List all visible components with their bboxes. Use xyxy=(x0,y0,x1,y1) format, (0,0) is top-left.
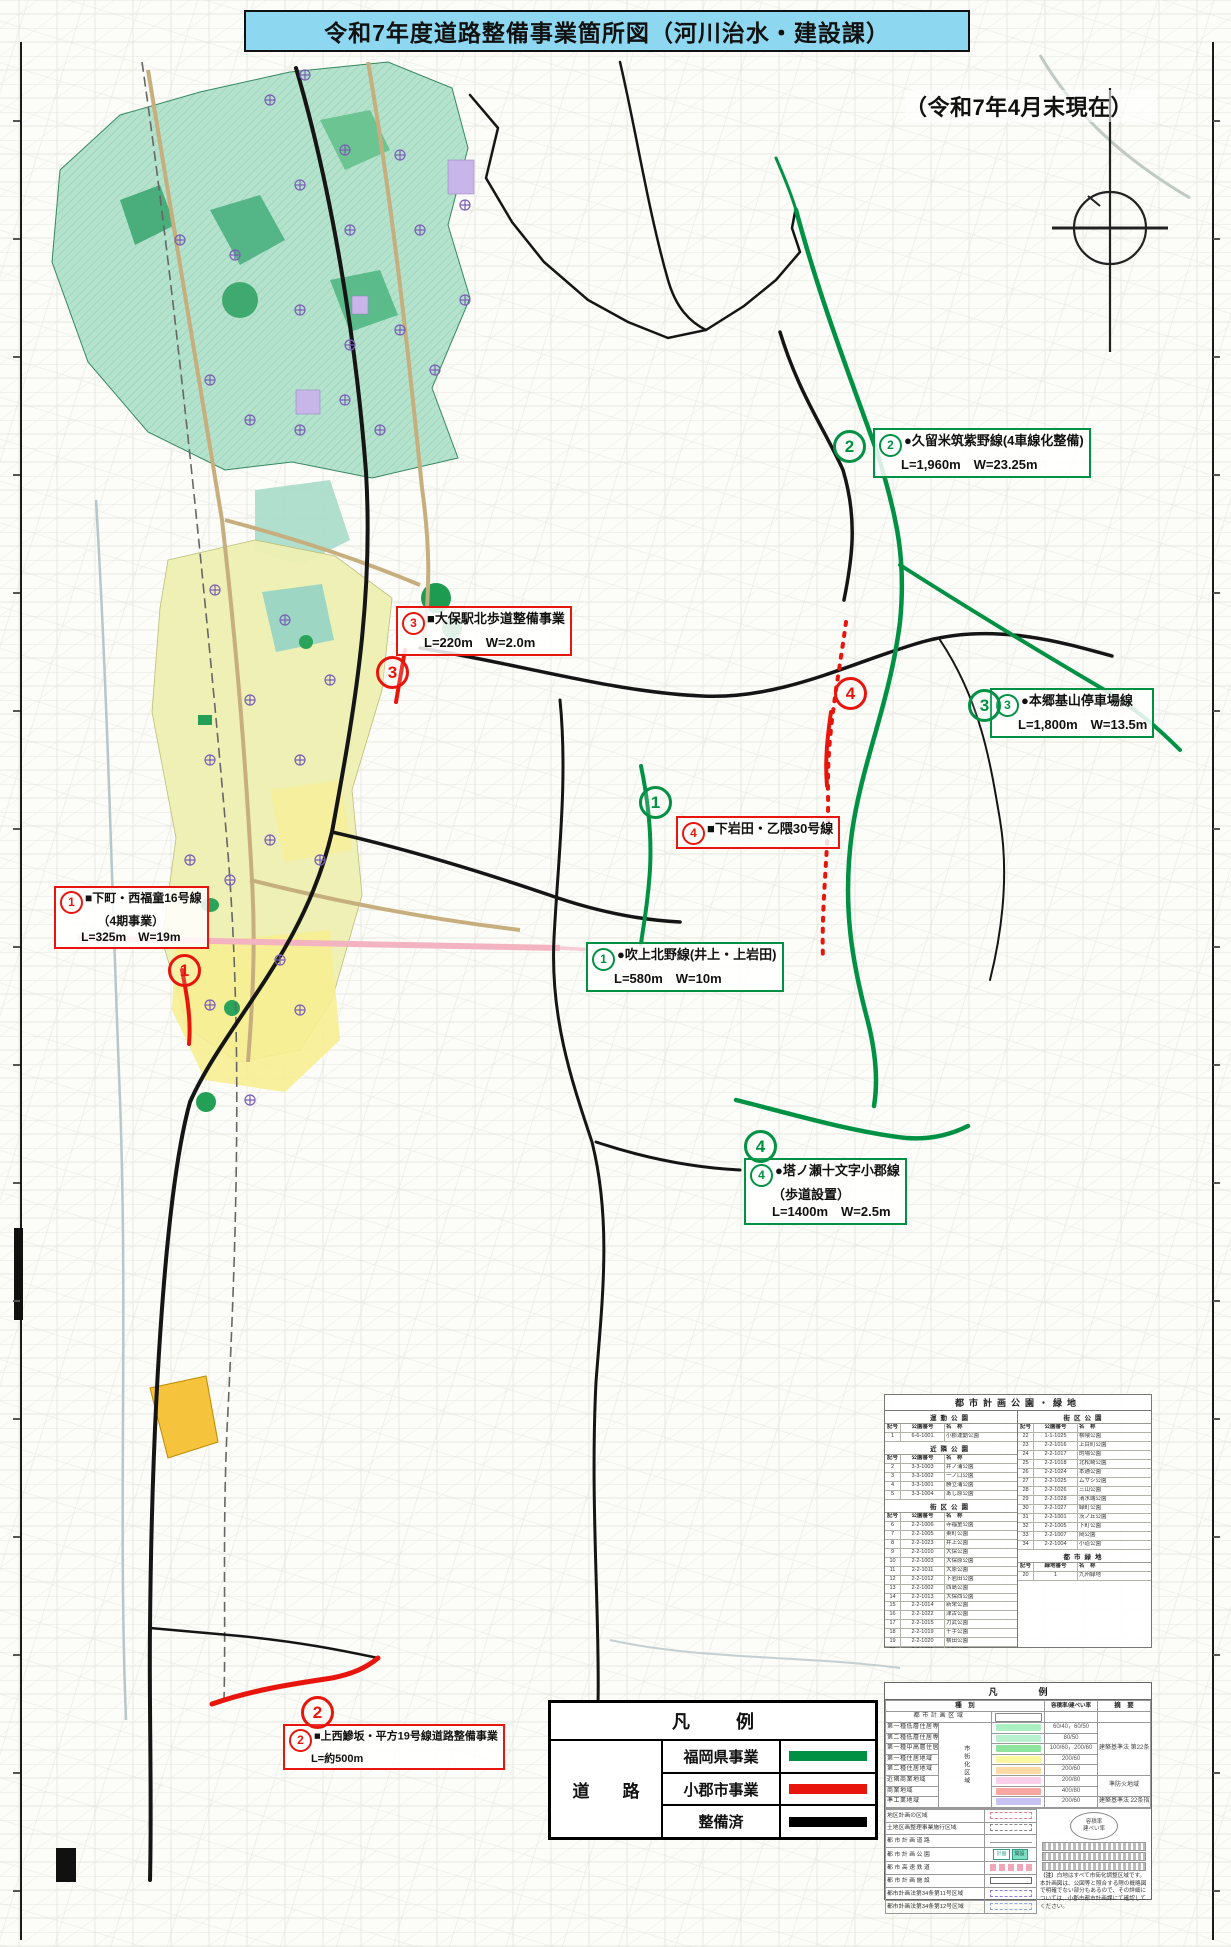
park-section-header: 都市緑地 xyxy=(1018,1550,1151,1563)
circled-number-icon: 2 xyxy=(289,1729,312,1752)
zoning-notes: 容積率 建ぺい率 （注）白地はすべて市街化調整区域です。本計画図は、公図等と照合… xyxy=(1037,1809,1151,1914)
frame-tick xyxy=(1213,1182,1220,1184)
park-row: 332-2-1007岡公園 xyxy=(1018,1532,1151,1541)
park-row: 53-3-1004あし原公園 xyxy=(885,1491,1017,1500)
frame-tick xyxy=(13,120,20,122)
frame-tick xyxy=(1213,1300,1220,1302)
park-table: 都市計画公園・緑地 運動公園記号公園番号名 称16-6-1001小郡運動公園近隣… xyxy=(884,1394,1152,1648)
park-row: 302-2-1027緑町公園 xyxy=(1018,1505,1151,1514)
map-marker-city1: 1 xyxy=(168,954,201,987)
map-marker-pref2: 2 xyxy=(833,430,866,463)
frame-tick xyxy=(13,1654,20,1656)
park-row: 202-2-1021上町公園 xyxy=(885,1647,1017,1648)
park-row: 16-6-1001小郡運動公園 xyxy=(885,1433,1017,1442)
zoning-note-text: （注）白地はすべて市街化調整区域です。本計画図は、公図等と照合する際の概略図で明… xyxy=(1040,1873,1148,1912)
park-row: 262-2-1024本通公園 xyxy=(1018,1469,1151,1478)
park-section-header: 近隣公園 xyxy=(885,1442,1017,1455)
circled-number-icon: 1 xyxy=(592,948,615,971)
frame-tick xyxy=(13,1772,20,1774)
callout-name: ■下町・西福童16号線 xyxy=(85,891,202,905)
page-title: 令和7年度道路整備事業箇所図（河川治水・建設課） xyxy=(244,10,970,52)
frame-tick xyxy=(13,946,20,948)
legend-row-city: 小郡市事業 xyxy=(663,1774,875,1807)
frame-tick xyxy=(13,1064,20,1066)
frame-tick xyxy=(1213,1536,1220,1538)
zoning-facility-row: 都 市 計 画 道 路 xyxy=(886,1835,1037,1848)
callout-name: ■大保駅北歩道整備事業 xyxy=(427,611,565,626)
map-marker-city4: 4 xyxy=(834,677,867,710)
map-marker-city2: 2 xyxy=(301,1696,334,1729)
road-legend: 凡 例 道 路 福岡県事業 小郡市事業 整備済 xyxy=(548,1700,878,1840)
park-row: 232-2-1016上目町公園 xyxy=(1018,1442,1151,1451)
legend-color-bar xyxy=(789,1784,867,1794)
park-row: 162-2-1022津古公園 xyxy=(885,1611,1017,1620)
zoning-facility-row: 都 市 高 速 鉄 道 xyxy=(886,1862,1037,1875)
map-sheet: 令和7年度道路整備事業箇所図（河川治水・建設課） （令和7年4月末現在） 2●久… xyxy=(0,0,1231,1947)
map-marker-pref3: 3 xyxy=(968,689,1001,722)
park-row: 23-3-1003井ノ浦公園 xyxy=(885,1464,1017,1473)
park-table-title: 都市計画公園・緑地 xyxy=(885,1395,1151,1411)
callout-name: ■上西鰺坂・平方19号線道路整備事業 xyxy=(314,1731,498,1743)
callout-detail: L=220m W=2.0m xyxy=(424,635,565,652)
park-row: 43-3-1001勝立浦公園 xyxy=(885,1482,1017,1491)
road-legend-title: 凡 例 xyxy=(551,1703,875,1741)
frame-tick xyxy=(1213,946,1220,948)
park-section-header: 街区公園 xyxy=(1018,1411,1151,1424)
callout-detail: （4期事業） xyxy=(60,914,202,930)
callout-fukiage: 1●吹上北野線(井上・上岩田)L=580m W=10m xyxy=(586,942,784,992)
frame-left xyxy=(20,42,22,1940)
legend-row-done: 整備済 xyxy=(663,1806,875,1837)
callout-name: ■下岩田・乙隈30号線 xyxy=(707,821,833,836)
callout-detail: L=約500m xyxy=(311,1752,498,1766)
frame-tick xyxy=(13,474,20,476)
frame-tick xyxy=(1213,1064,1220,1066)
zoning-legend-title: 凡 例 xyxy=(885,1683,1151,1700)
frame-tick xyxy=(13,592,20,594)
zoning-facility-row: 都市計画法第34条第12号区域 xyxy=(886,1900,1037,1913)
park-row: 242-2-1017的場公園 xyxy=(1018,1451,1151,1460)
callout-name: ●本郷基山停車場線 xyxy=(1021,693,1133,708)
park-row: 152-2-1014新栄公園 xyxy=(885,1602,1017,1611)
frame-tick xyxy=(13,238,20,240)
frame-tick xyxy=(1213,592,1220,594)
zoning-facility-row: 土地区画整理事業施行区域 xyxy=(886,1822,1037,1835)
park-row: 282-2-1026三山公園 xyxy=(1018,1487,1151,1496)
callout-shimomachi: 1■下町・西福童16号線（4期事業）L=325m W=19m xyxy=(54,886,209,949)
map-marker-city3: 3 xyxy=(376,656,409,689)
callout-detail: L=1,960m W=23.25m xyxy=(901,457,1084,474)
park-row: 252-2-1018北松崎公園 xyxy=(1018,1460,1151,1469)
callout-name: ●吹上北野線(井上・上岩田) xyxy=(617,947,777,962)
callout-detail: L=1400m W=2.5m xyxy=(772,1204,900,1221)
park-row: 92-2-1010大保公園 xyxy=(885,1549,1017,1558)
park-row: 172-2-1015力武公園 xyxy=(885,1620,1017,1629)
park-row: 322-2-1005下町公園 xyxy=(1018,1523,1151,1532)
callout-kurume: 2●久留米筑紫野線(4車線化整備)L=1,960m W=23.25m xyxy=(873,428,1091,478)
park-section-header: 街区公園 xyxy=(885,1500,1017,1513)
callout-name: ●久留米筑紫野線(4車線化整備) xyxy=(904,433,1084,448)
callout-detail: L=1,800m W=13.5m xyxy=(1018,717,1147,734)
legend-row-pref: 福岡県事業 xyxy=(663,1741,875,1774)
callout-detail: L=325m W=19m xyxy=(60,930,202,946)
frame-tick xyxy=(1213,1654,1220,1656)
legend-color-bar xyxy=(789,1751,867,1761)
zoning-row: 第一種低層住居専用地域市街化区域60/40，60/50建築基準法 第22条 指定… xyxy=(886,1722,1151,1733)
park-row: 132-2-1002西島公園 xyxy=(885,1585,1017,1594)
park-row: 142-2-1013大保西公園 xyxy=(885,1594,1017,1603)
map-marker-pref4: 4 xyxy=(744,1130,777,1163)
callout-kaminishi: 2■上西鰺坂・平方19号線道路整備事業L=約500m xyxy=(283,1724,505,1770)
road-legend-category: 道 路 xyxy=(551,1741,663,1837)
zoning-legend: 凡 例 種 別容積率/建ぺい率摘 要都 市 計 画 区 域第一種低層住居専用地域… xyxy=(884,1682,1152,1900)
frame-tick xyxy=(13,356,20,358)
park-row: 112-2-1011大原公園 xyxy=(885,1567,1017,1576)
circled-number-icon: 4 xyxy=(682,822,705,845)
circled-number-icon: 3 xyxy=(402,612,425,635)
zoning-row: 近隣商業地域200/80準防火地域 xyxy=(886,1775,1151,1786)
park-row: 122-2-1012下岩田公園 xyxy=(885,1576,1017,1585)
park-row: 272-2-1025ムサシ公園 xyxy=(1018,1478,1151,1487)
callout-oho: 3■大保駅北歩道整備事業L=220m W=2.0m xyxy=(396,606,572,656)
zoning-facility-row: 都 市 計 画 施 設 xyxy=(886,1875,1037,1888)
frame-tick xyxy=(1213,1418,1220,1420)
frame-tick xyxy=(13,1890,20,1892)
map-marker-pref1: 1 xyxy=(639,786,672,819)
park-row: 102-2-1003大保原公園 xyxy=(885,1558,1017,1567)
callout-tonose: 4●塔ノ瀬十文字小郡線（歩道設置）L=1400m W=2.5m xyxy=(744,1158,907,1225)
callout-name: ●塔ノ瀬十文字小郡線 xyxy=(775,1163,900,1178)
frame-tick xyxy=(1213,710,1220,712)
zoning-facility-row: 地区計画の区域 xyxy=(886,1809,1037,1822)
zoning-facility-row: 都市計画法第34条第11号区域 xyxy=(886,1888,1037,1901)
frame-tick xyxy=(13,828,20,830)
frame-tick xyxy=(1213,828,1220,830)
park-row: 33-3-1002一ノ口公園 xyxy=(885,1473,1017,1482)
callout-detail: （歩道設置） xyxy=(772,1187,900,1204)
frame-tick xyxy=(13,710,20,712)
date-note: （令和7年4月末現在） xyxy=(905,90,1157,122)
park-section-header: 運動公園 xyxy=(885,1411,1017,1424)
frame-tick xyxy=(13,1182,20,1184)
frame-black-mark xyxy=(14,1228,23,1320)
frame-tick xyxy=(1213,1890,1220,1892)
park-row: 72-2-1005東町公園 xyxy=(885,1531,1017,1540)
frame-tick xyxy=(13,1300,20,1302)
ratio-circle: 容積率 建ぺい率 xyxy=(1070,1812,1118,1840)
park-row: 62-2-1006寺福童公園 xyxy=(885,1522,1017,1531)
callout-shimoiwata: 4■下岩田・乙隈30号線 xyxy=(676,816,840,849)
park-row: 201九州緑地 xyxy=(1018,1572,1151,1581)
circled-number-icon: 2 xyxy=(879,434,902,457)
park-row: 292-2-1028清水端公園 xyxy=(1018,1496,1151,1505)
park-row: 221-1-1025横隈公園 xyxy=(1018,1433,1151,1442)
callout-hongo: 3●本郷基山停車場線L=1,800m W=13.5m xyxy=(990,688,1154,738)
park-row: 312-2-1001茨ノ丘公園 xyxy=(1018,1514,1151,1523)
zoning-facility-row: 都 市 計 画 公 園計画開設 xyxy=(886,1848,1037,1862)
circled-number-icon: 1 xyxy=(60,891,83,914)
legend-color-bar xyxy=(789,1817,867,1827)
park-row: 192-2-1020横田公園 xyxy=(885,1638,1017,1647)
park-row: 82-2-1023井上公園 xyxy=(885,1540,1017,1549)
frame-tick xyxy=(1213,474,1220,476)
frame-black-mark-2 xyxy=(56,1848,76,1882)
frame-tick xyxy=(1213,356,1220,358)
callout-detail: L=580m W=10m xyxy=(614,971,777,988)
zoning-row: 準工業地域200/60建築基準法 22条指定区域 xyxy=(886,1797,1151,1808)
circled-number-icon: 4 xyxy=(750,1164,773,1187)
frame-tick xyxy=(13,1536,20,1538)
frame-tick xyxy=(1213,120,1220,122)
park-row: 182-2-1019千手公園 xyxy=(885,1629,1017,1638)
frame-tick xyxy=(13,1418,20,1420)
frame-tick xyxy=(1213,1772,1220,1774)
frame-tick xyxy=(1213,238,1220,240)
park-row: 342-2-1004小道公園 xyxy=(1018,1541,1151,1550)
